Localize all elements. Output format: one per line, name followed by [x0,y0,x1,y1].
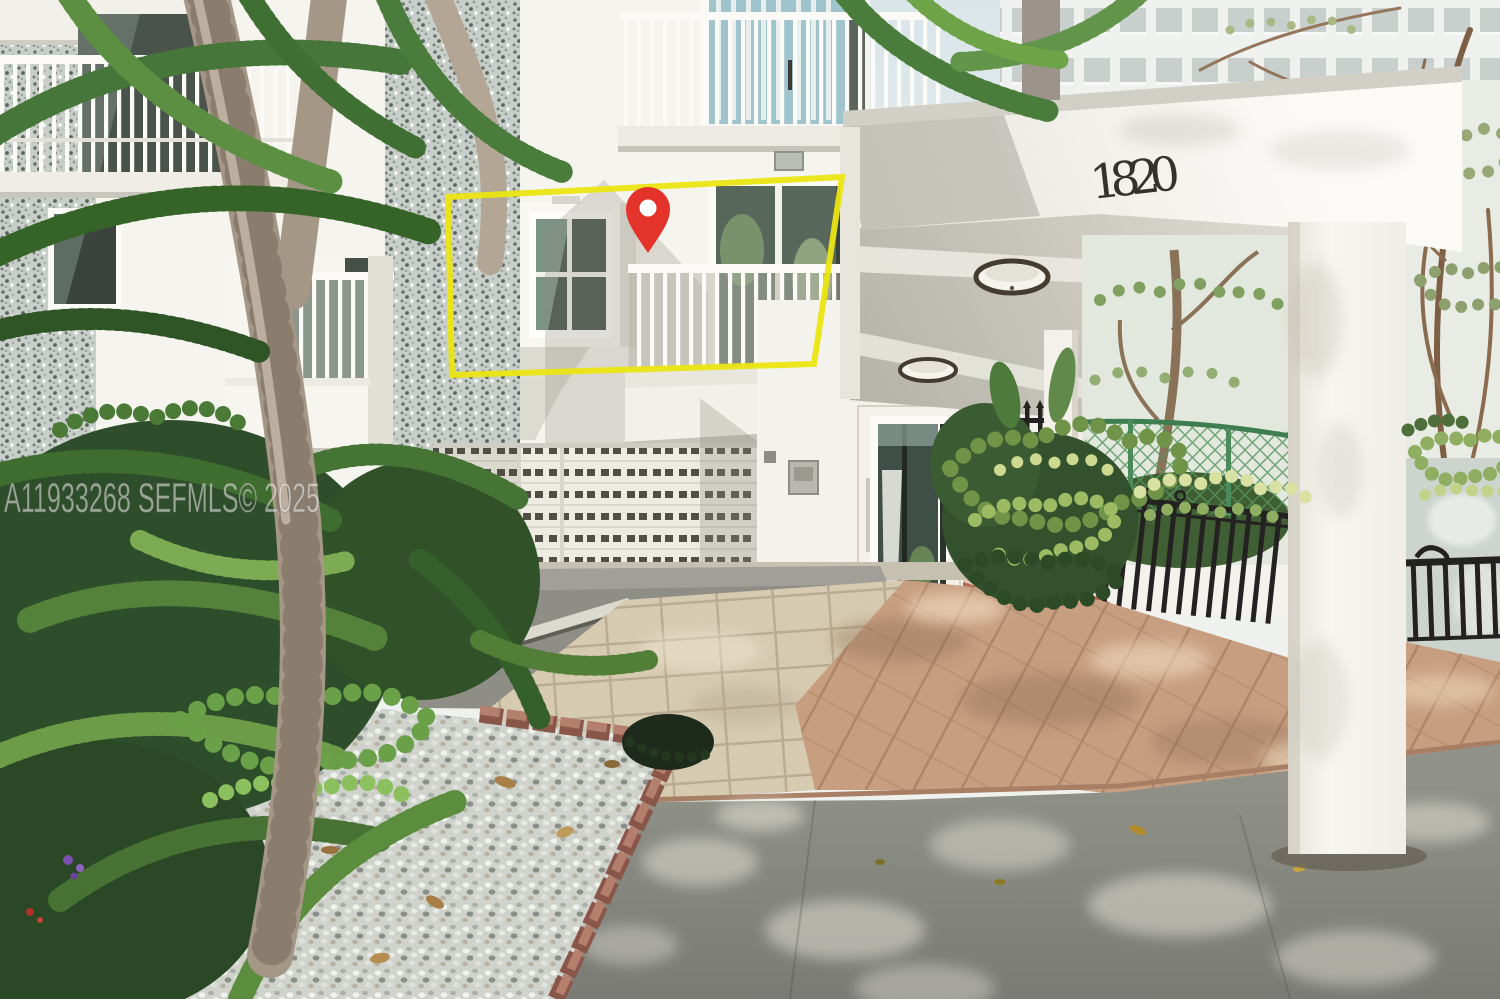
canopy-left-return [840,127,860,399]
building-number: 1820 [1087,146,1185,211]
ceiling-light-large [976,261,1048,293]
wall-vent [775,152,803,170]
ceiling-light-small [900,359,956,381]
photo-canvas: 1820 [0,0,1500,999]
watermark: A11933268 SEFMLS© 2025 [4,474,320,521]
listing-photo: 1820 [0,0,1500,999]
door-handle [866,478,870,552]
